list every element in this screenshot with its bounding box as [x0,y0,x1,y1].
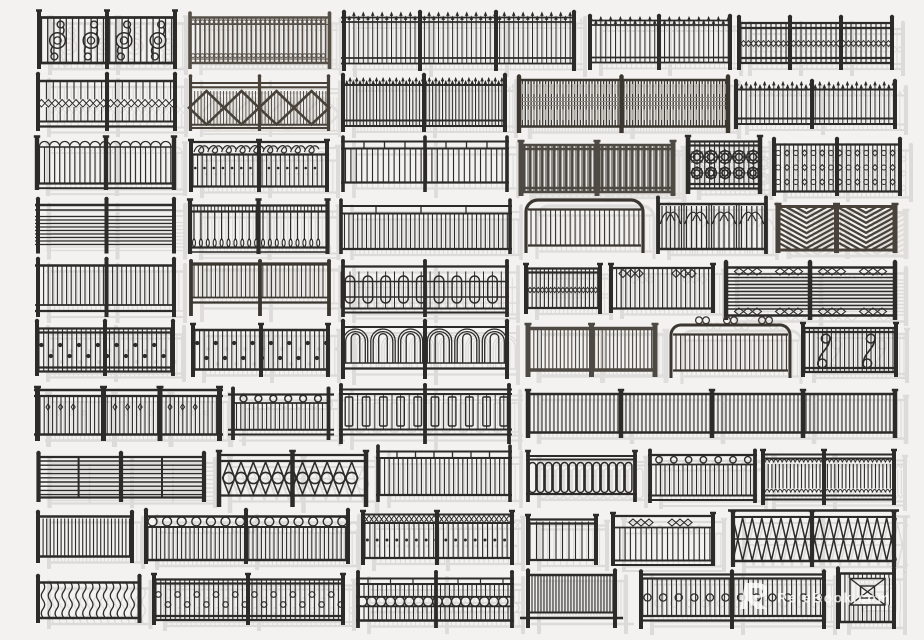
svg-text:ReleBook.com: ReleBook.com [777,591,891,606]
